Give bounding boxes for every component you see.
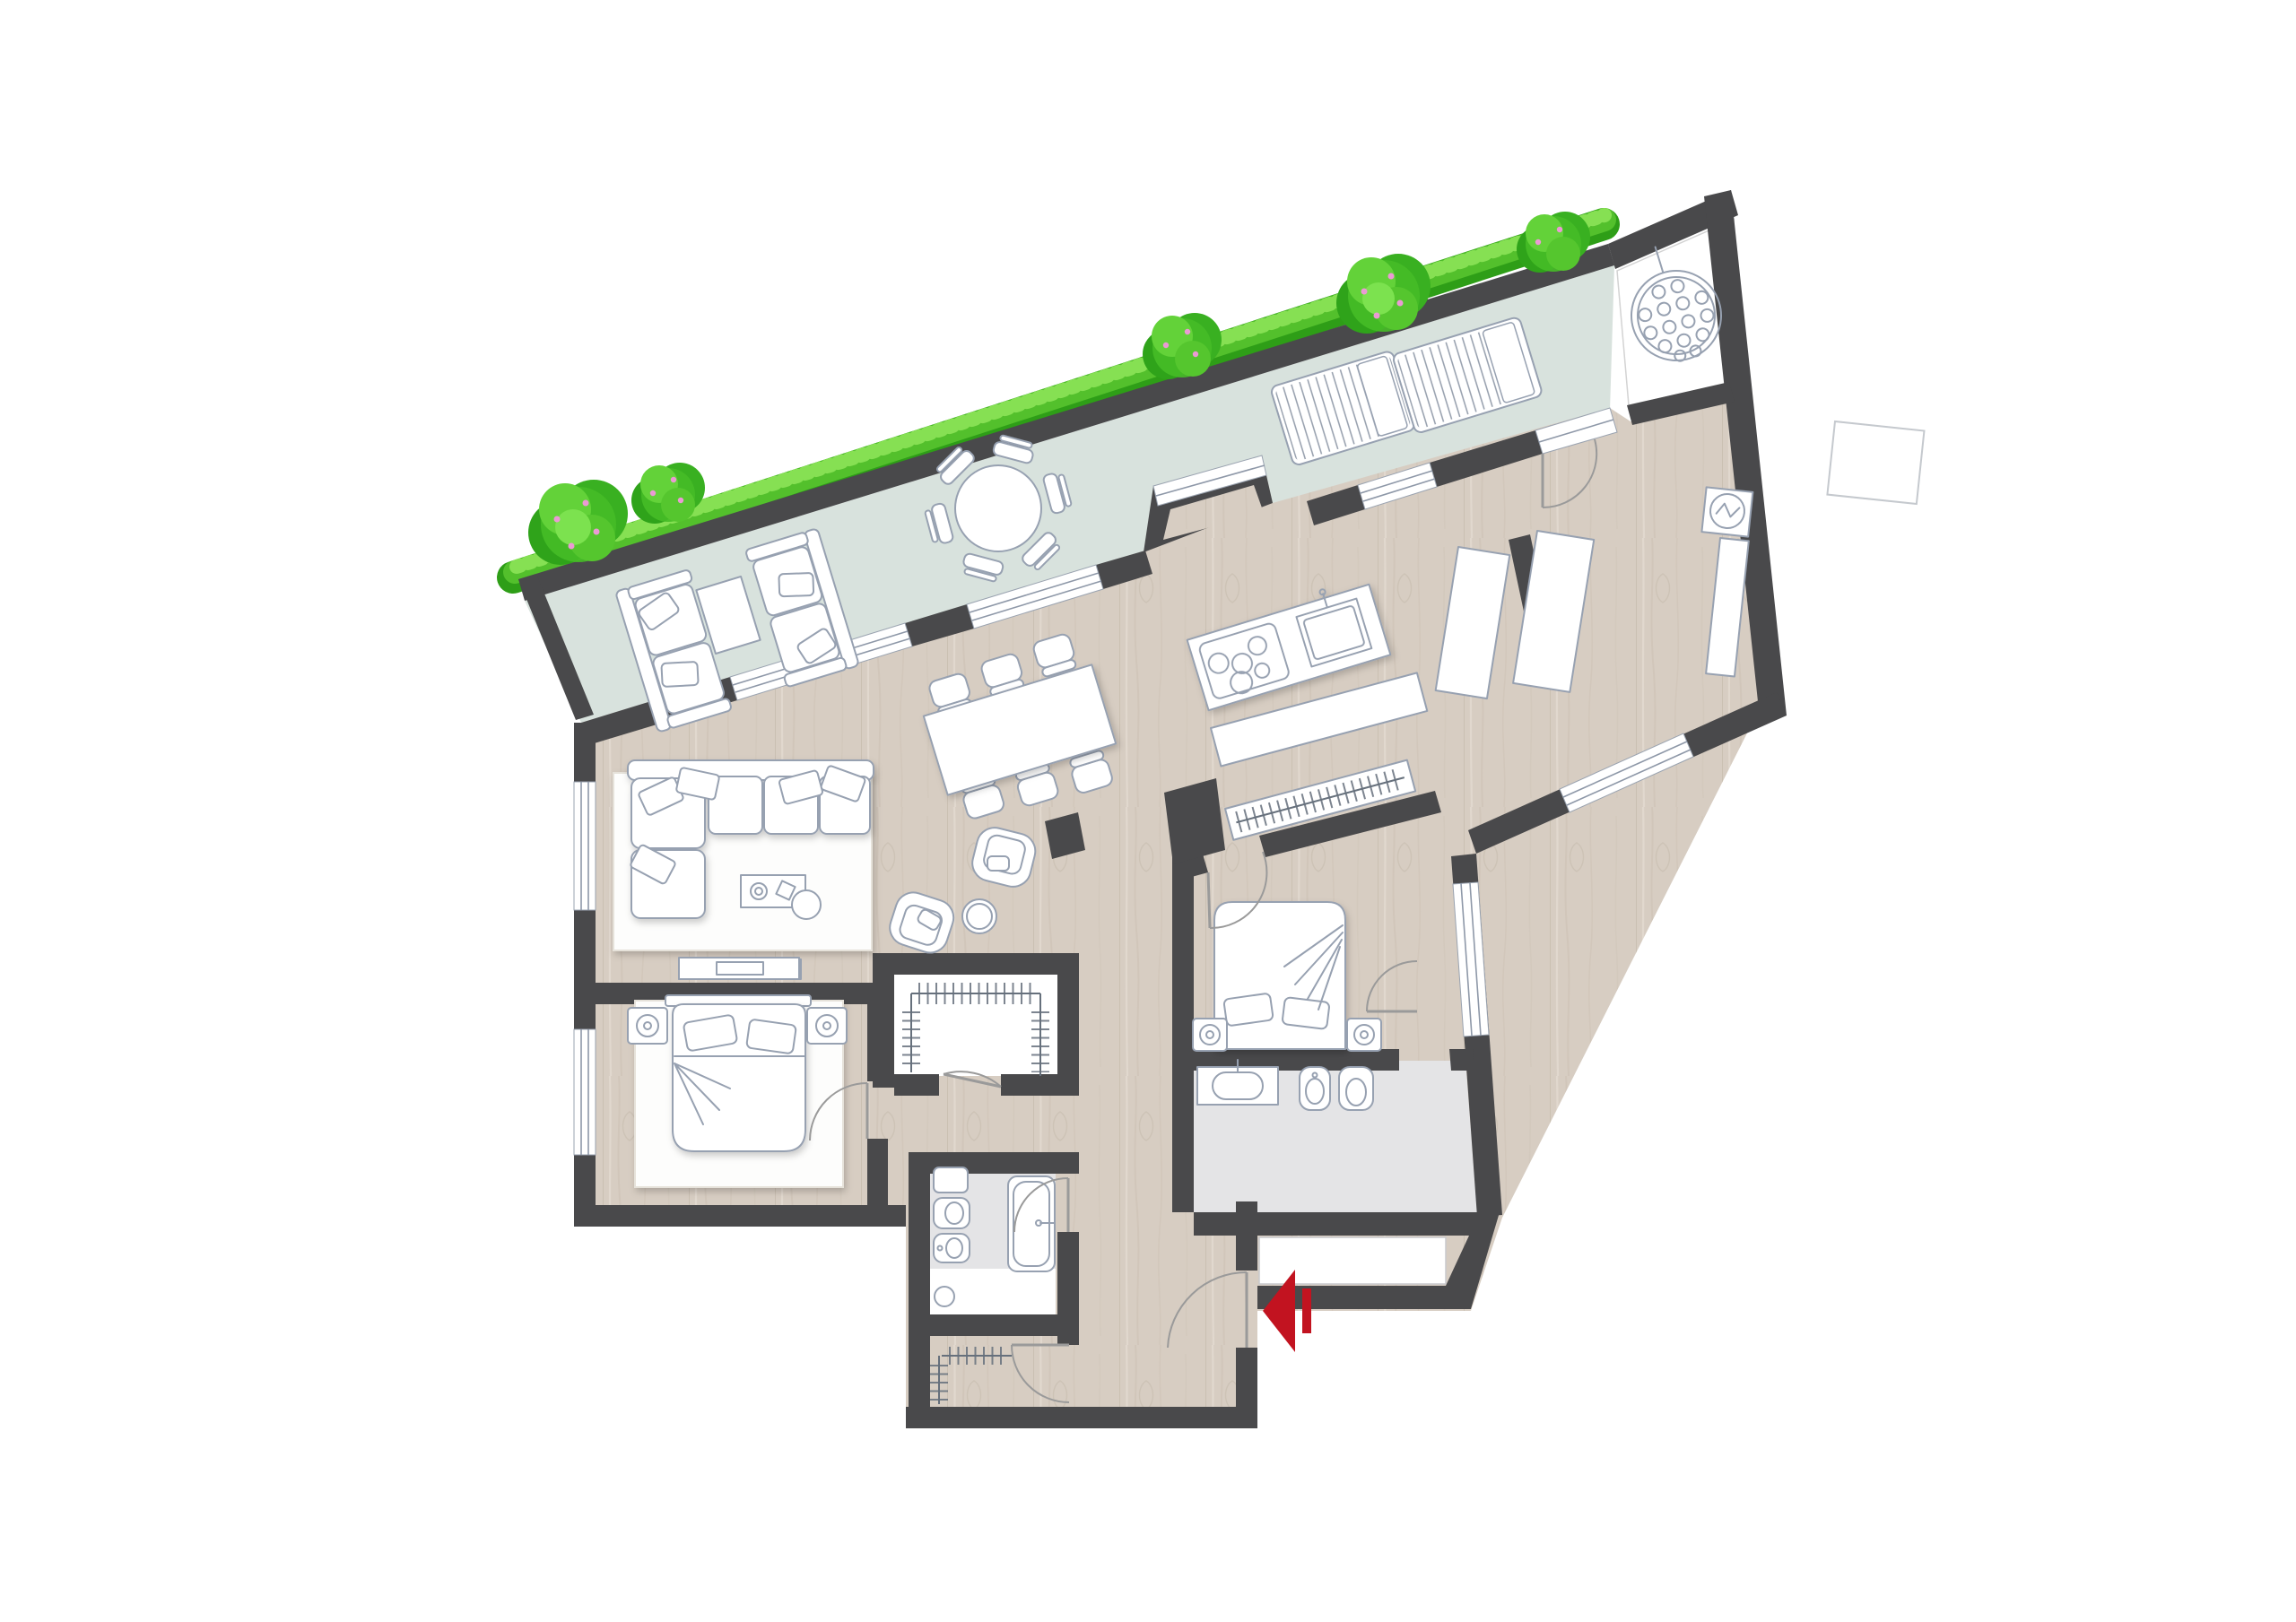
wall-bath-closet-divider <box>909 1314 1067 1336</box>
wall-segment <box>867 1139 888 1227</box>
wall-closet-right <box>1057 953 1079 1088</box>
nightstand <box>807 1008 847 1044</box>
washbasin-counter <box>1197 1060 1278 1105</box>
side-table <box>962 899 996 933</box>
wall-bottom <box>906 1407 1257 1428</box>
floor-plan <box>0 0 2296 1622</box>
pouf <box>792 890 821 919</box>
wall-bedroom1-bottom <box>574 1205 906 1227</box>
entrance-arrow-bar <box>1302 1288 1311 1333</box>
bidet <box>934 1234 970 1262</box>
wall-segment <box>894 1074 939 1096</box>
toilet <box>934 1198 970 1228</box>
nightstand <box>1347 1019 1381 1051</box>
pillar <box>1164 778 1225 864</box>
terrace-round-table <box>955 465 1041 551</box>
dresser <box>679 958 799 979</box>
linen-niche <box>1259 1237 1446 1284</box>
window <box>574 1029 596 1155</box>
wall-entry-right-top <box>1236 1201 1257 1271</box>
nightstand <box>628 1008 667 1044</box>
wall-bedroom2-left <box>1172 856 1194 1212</box>
shower-zone-floor <box>930 1269 1056 1314</box>
bed <box>673 1004 805 1151</box>
wall-segment <box>1057 1232 1079 1314</box>
wall-closet-top <box>873 953 1079 975</box>
nightstand <box>1193 1019 1227 1051</box>
electrical-panel <box>1701 487 1752 536</box>
wall-segment <box>1001 1074 1079 1096</box>
washbasin <box>934 1167 968 1193</box>
wall-segment <box>1449 1049 1474 1071</box>
bidet <box>1300 1067 1330 1110</box>
window <box>574 782 596 910</box>
exterior-ledge <box>1827 421 1924 504</box>
toilet <box>1339 1067 1373 1110</box>
wall-segment <box>1057 1314 1079 1345</box>
wall-bathroom-left <box>909 1152 930 1428</box>
floor-plan-page <box>0 0 2296 1622</box>
